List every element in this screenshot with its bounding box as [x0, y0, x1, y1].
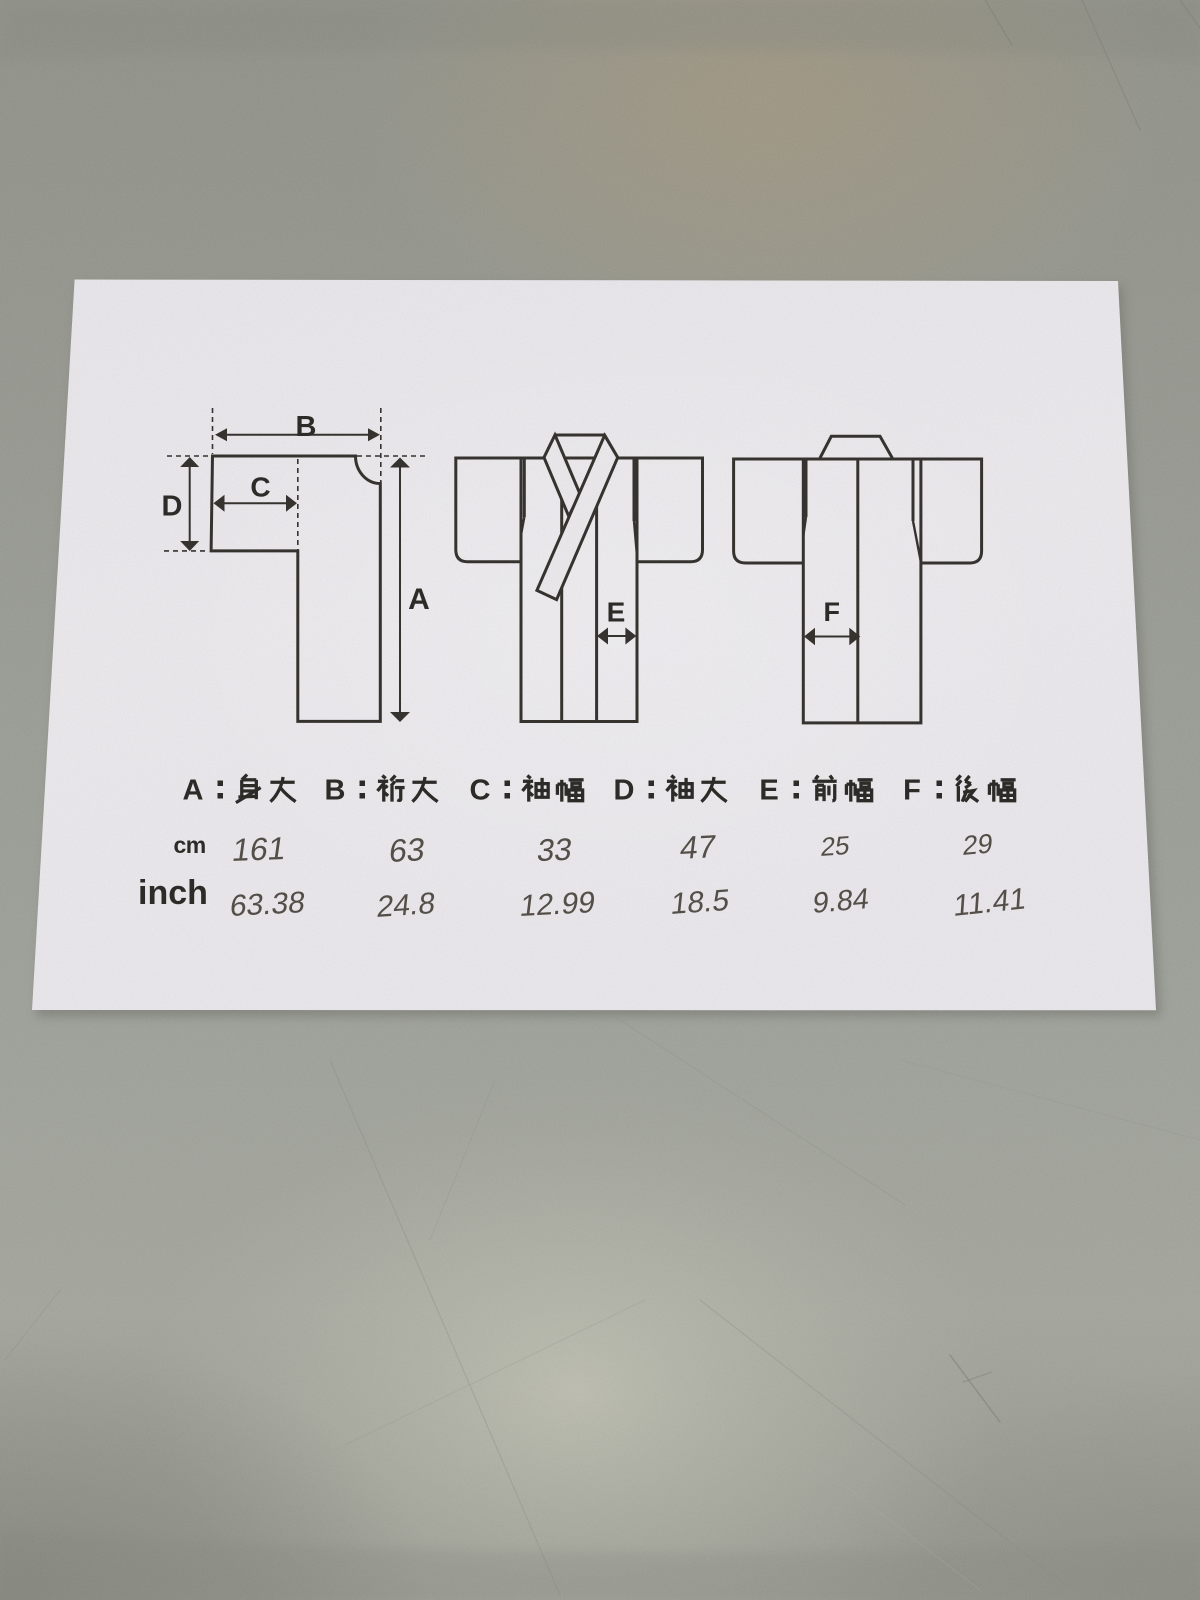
svg-text:12.99: 12.99 — [518, 886, 597, 923]
svg-text:C: C — [250, 472, 270, 503]
svg-text:F: F — [823, 597, 840, 627]
svg-text:E: E — [607, 597, 626, 628]
svg-text:D: D — [614, 775, 635, 807]
svg-text:24.8: 24.8 — [375, 887, 437, 924]
svg-text:29: 29 — [961, 827, 994, 861]
svg-text:25: 25 — [819, 830, 851, 862]
svg-text:C: C — [470, 775, 491, 807]
svg-text:9.84: 9.84 — [811, 883, 870, 920]
svg-text:A: A — [408, 583, 430, 616]
svg-text:33: 33 — [535, 832, 574, 868]
svg-text:63.38: 63.38 — [228, 886, 307, 923]
svg-text:cm: cm — [174, 832, 206, 858]
svg-text:F: F — [903, 775, 921, 807]
svg-text:B: B — [296, 411, 317, 443]
svg-text:B: B — [325, 775, 346, 807]
svg-text:inch: inch — [138, 874, 208, 912]
svg-text:A: A — [183, 775, 204, 807]
svg-text:47: 47 — [678, 828, 718, 866]
svg-text:E: E — [759, 775, 778, 807]
svg-text:18.5: 18.5 — [669, 884, 731, 921]
svg-text:D: D — [162, 491, 183, 523]
svg-text:161: 161 — [230, 830, 288, 868]
svg-text:63: 63 — [387, 831, 427, 869]
